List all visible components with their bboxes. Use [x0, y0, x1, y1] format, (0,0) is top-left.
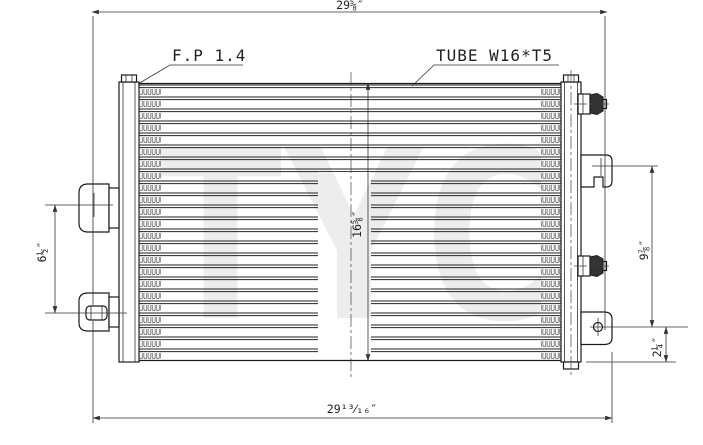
bottom-offset-text: 2¼″ [650, 337, 664, 358]
tube-rows-left [139, 172, 318, 356]
tube-rows-bottom [139, 356, 561, 360]
fin-strip-right [541, 84, 561, 360]
lower-left-bracket-plate [109, 297, 119, 327]
core-height-text: 16⅝″ [350, 210, 364, 238]
lower-right-bracket [581, 312, 612, 345]
technical-drawing-page: TYC [0, 0, 703, 445]
fin-strip-left [140, 84, 161, 360]
upper-left-bracket [79, 184, 119, 232]
tube-rows-top [139, 84, 561, 172]
left-header-tank [119, 75, 139, 362]
left-span-text: 6½″ [35, 242, 49, 263]
top-width-text: 29⅝″ [336, 0, 364, 12]
right-span-text: 9⅞″ [637, 240, 651, 261]
upper-left-bracket-plate [109, 188, 119, 228]
tube-rows-right [371, 172, 561, 356]
bottom-width-text: 29¹³⁄₁₆″ [327, 402, 377, 416]
condenser-drawing: TYC [0, 0, 703, 445]
lower-left-bracket [79, 293, 119, 331]
fin-pitch-label: F.P 1.4 [172, 46, 246, 65]
tube-spec-label: TUBE W16*T5 [436, 46, 553, 65]
left-header-top-cap [122, 75, 137, 82]
